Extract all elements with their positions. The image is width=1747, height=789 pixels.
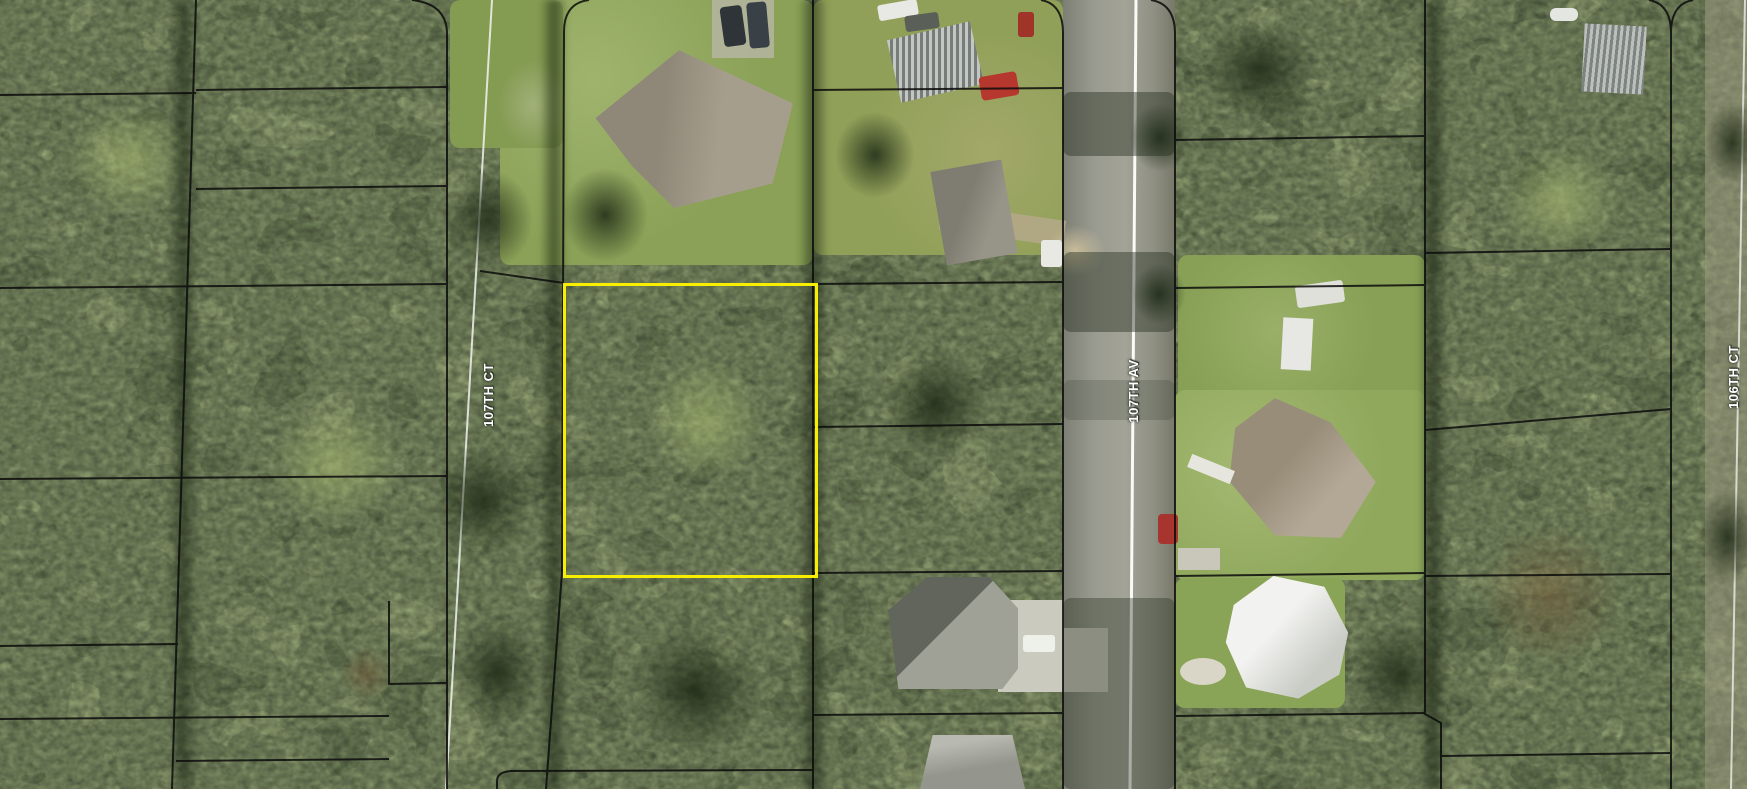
street-label-107th-ct: 107TH CT bbox=[481, 355, 497, 435]
highlighted-parcel[interactable] bbox=[563, 283, 818, 578]
aerial-map[interactable]: 107TH CT 107TH AV 106TH CT bbox=[0, 0, 1747, 789]
street-label-106th-ct: 106TH CT bbox=[1726, 337, 1742, 417]
street-label-107th-av: 107TH AV bbox=[1126, 351, 1142, 431]
parcel-boundaries bbox=[0, 0, 1747, 789]
